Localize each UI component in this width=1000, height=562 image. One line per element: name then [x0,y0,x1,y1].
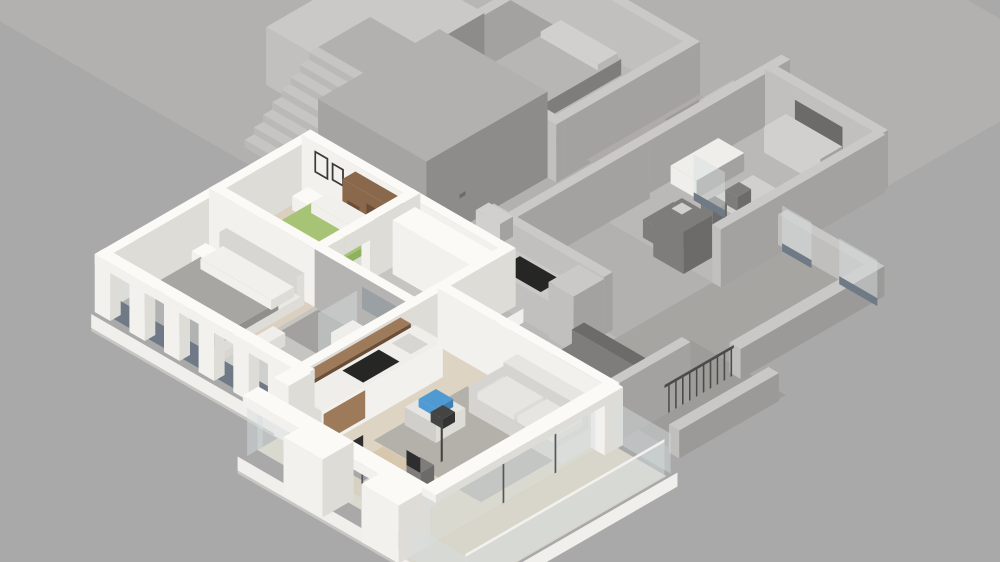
railing-post [689,372,691,401]
railing-post [724,352,726,381]
g-wall [556,120,565,183]
g-east-wall [712,225,721,288]
railing-post [675,380,677,409]
railing-post [717,356,719,385]
isometric-view [0,0,1000,562]
railing-post [696,368,698,397]
railing-post [703,364,705,393]
railing-post [710,360,712,389]
floorplan-render [0,0,1000,562]
railing-post [668,384,670,413]
railing-post [682,376,684,405]
g-wall [604,272,613,335]
railing-post [731,348,733,377]
